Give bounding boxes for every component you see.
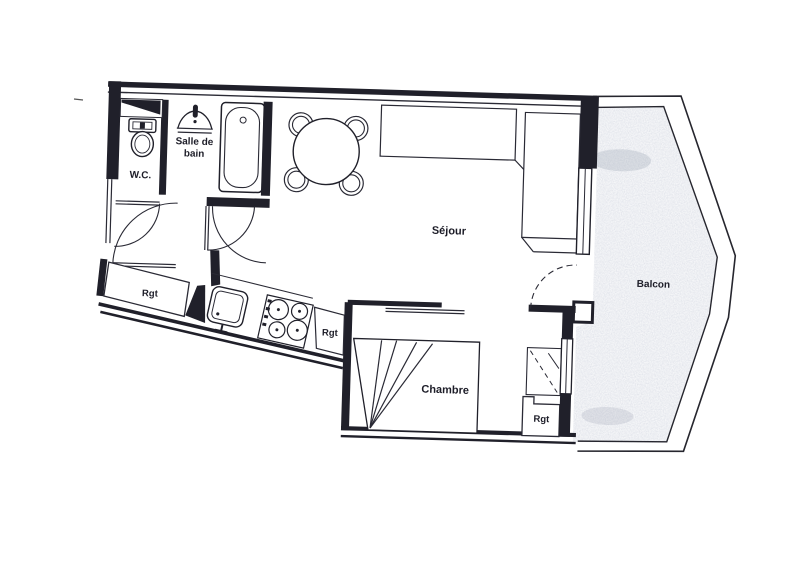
wall-top-outer: [108, 84, 597, 99]
room-label-chambre: Chambre: [421, 383, 469, 396]
room-label-wc: W.C.: [129, 170, 151, 182]
scan-speck: [74, 99, 83, 100]
shelf-line: [385, 311, 464, 313]
room-label-rgt-chambre: Rgt: [533, 414, 550, 425]
sideboard-top: [380, 105, 516, 160]
dining-table-icon: [292, 118, 360, 186]
door-swing-arc: [211, 206, 268, 263]
wall-left-wc: [106, 81, 121, 179]
storage-chambre-box: Rgt: [522, 396, 560, 436]
sideboard-right-column: [522, 112, 581, 239]
room-label-rgt-kitchen: Rgt: [322, 327, 339, 338]
door-swing-arc: [114, 202, 159, 247]
sideboard-chamfer: [521, 237, 533, 251]
balcony-door-threshold: [573, 302, 593, 323]
sideboard-bottom: [533, 252, 576, 253]
plan-rotated-group: W.C. Salle de bain: [94, 68, 753, 469]
closet: [526, 348, 561, 396]
stove-icon: [258, 295, 314, 348]
room-label-bathroom-1: Salle de: [175, 136, 214, 148]
wall-chambre-bottom-outer: [341, 436, 576, 443]
bathtub-icon: [219, 102, 265, 192]
wc-door: [114, 201, 159, 248]
wall-chambre-top: [348, 302, 442, 305]
door-swing-arc: [207, 205, 254, 251]
wall-chambre-right-bottom: [559, 394, 571, 437]
entry-door-leaf: [113, 263, 176, 265]
scanned-floor-plan-page: W.C. Salle de bain: [0, 0, 800, 577]
wc-room: W.C.: [114, 98, 168, 247]
sideboard-corner: [515, 160, 524, 169]
bathroom: Salle de bain: [172, 99, 273, 263]
living-room: Séjour: [282, 102, 580, 253]
wall-entry-left: [100, 259, 104, 296]
bedroom: Chambre Rgt: [344, 302, 574, 437]
toilet-icon: [128, 119, 156, 157]
wall-chambre-right-top: [562, 312, 574, 339]
room-label-sejour: Séjour: [432, 225, 467, 238]
shelf-line: [386, 308, 465, 310]
wall-kitchen-stub: [209, 250, 221, 286]
floor-plan-drawing: W.C. Salle de bain: [0, 0, 800, 577]
room-label-bathroom-2: bain: [184, 148, 205, 160]
door-swing-arc: [113, 201, 178, 266]
dining-set: [284, 112, 368, 195]
wall-left-thin-outer: [106, 179, 108, 243]
balcony-door-leaf: [529, 305, 576, 313]
room-label-balcon: Balcon: [637, 279, 671, 291]
wall-left-thin-inner: [110, 179, 112, 243]
wall-right-top: [579, 96, 599, 169]
wall-bathroom-south: [207, 197, 270, 208]
door-swing-arc-dashed: [531, 264, 577, 310]
room-label-rgt-entry: Rgt: [142, 288, 159, 299]
washbasin-icon: [177, 104, 214, 133]
